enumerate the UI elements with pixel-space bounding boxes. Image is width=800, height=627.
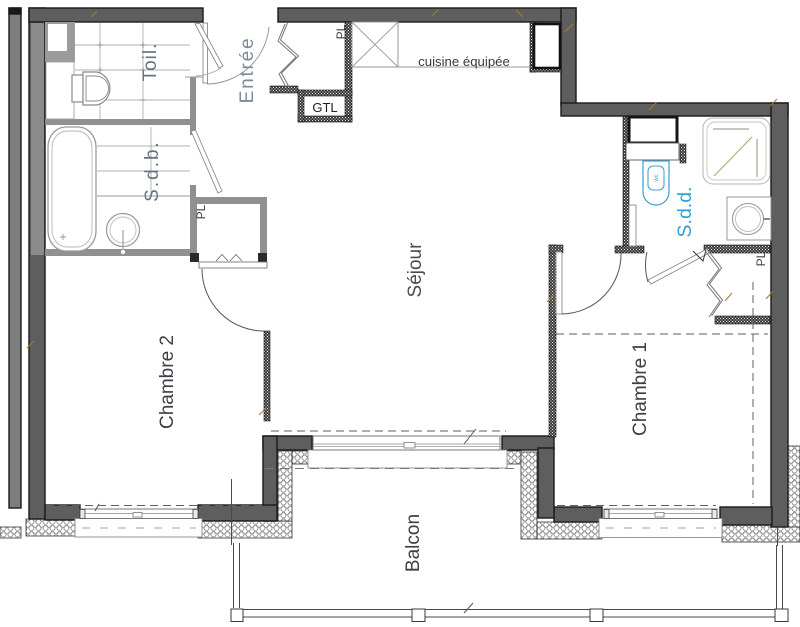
svg-text:Chambre 2: Chambre 2	[157, 335, 178, 429]
svg-text:PL: PL	[754, 251, 768, 266]
svg-text:cuisine équipée: cuisine équipée	[418, 54, 510, 69]
svg-text:S.d.d.: S.d.d.	[674, 187, 696, 238]
svg-text:Séjour: Séjour	[405, 242, 426, 298]
svg-text:wc: wc	[654, 174, 660, 182]
svg-text:Entrée: Entrée	[237, 37, 258, 104]
svg-text:Toil.: Toil.	[140, 43, 161, 82]
svg-text:PL: PL	[194, 204, 208, 219]
svg-text:GTL: GTL	[312, 100, 337, 115]
svg-text:PL: PL	[334, 24, 348, 39]
svg-text:Balcon: Balcon	[403, 514, 424, 572]
svg-text:S.d.b.: S.d.b.	[142, 140, 163, 202]
svg-text:Chambre 1: Chambre 1	[630, 342, 651, 436]
